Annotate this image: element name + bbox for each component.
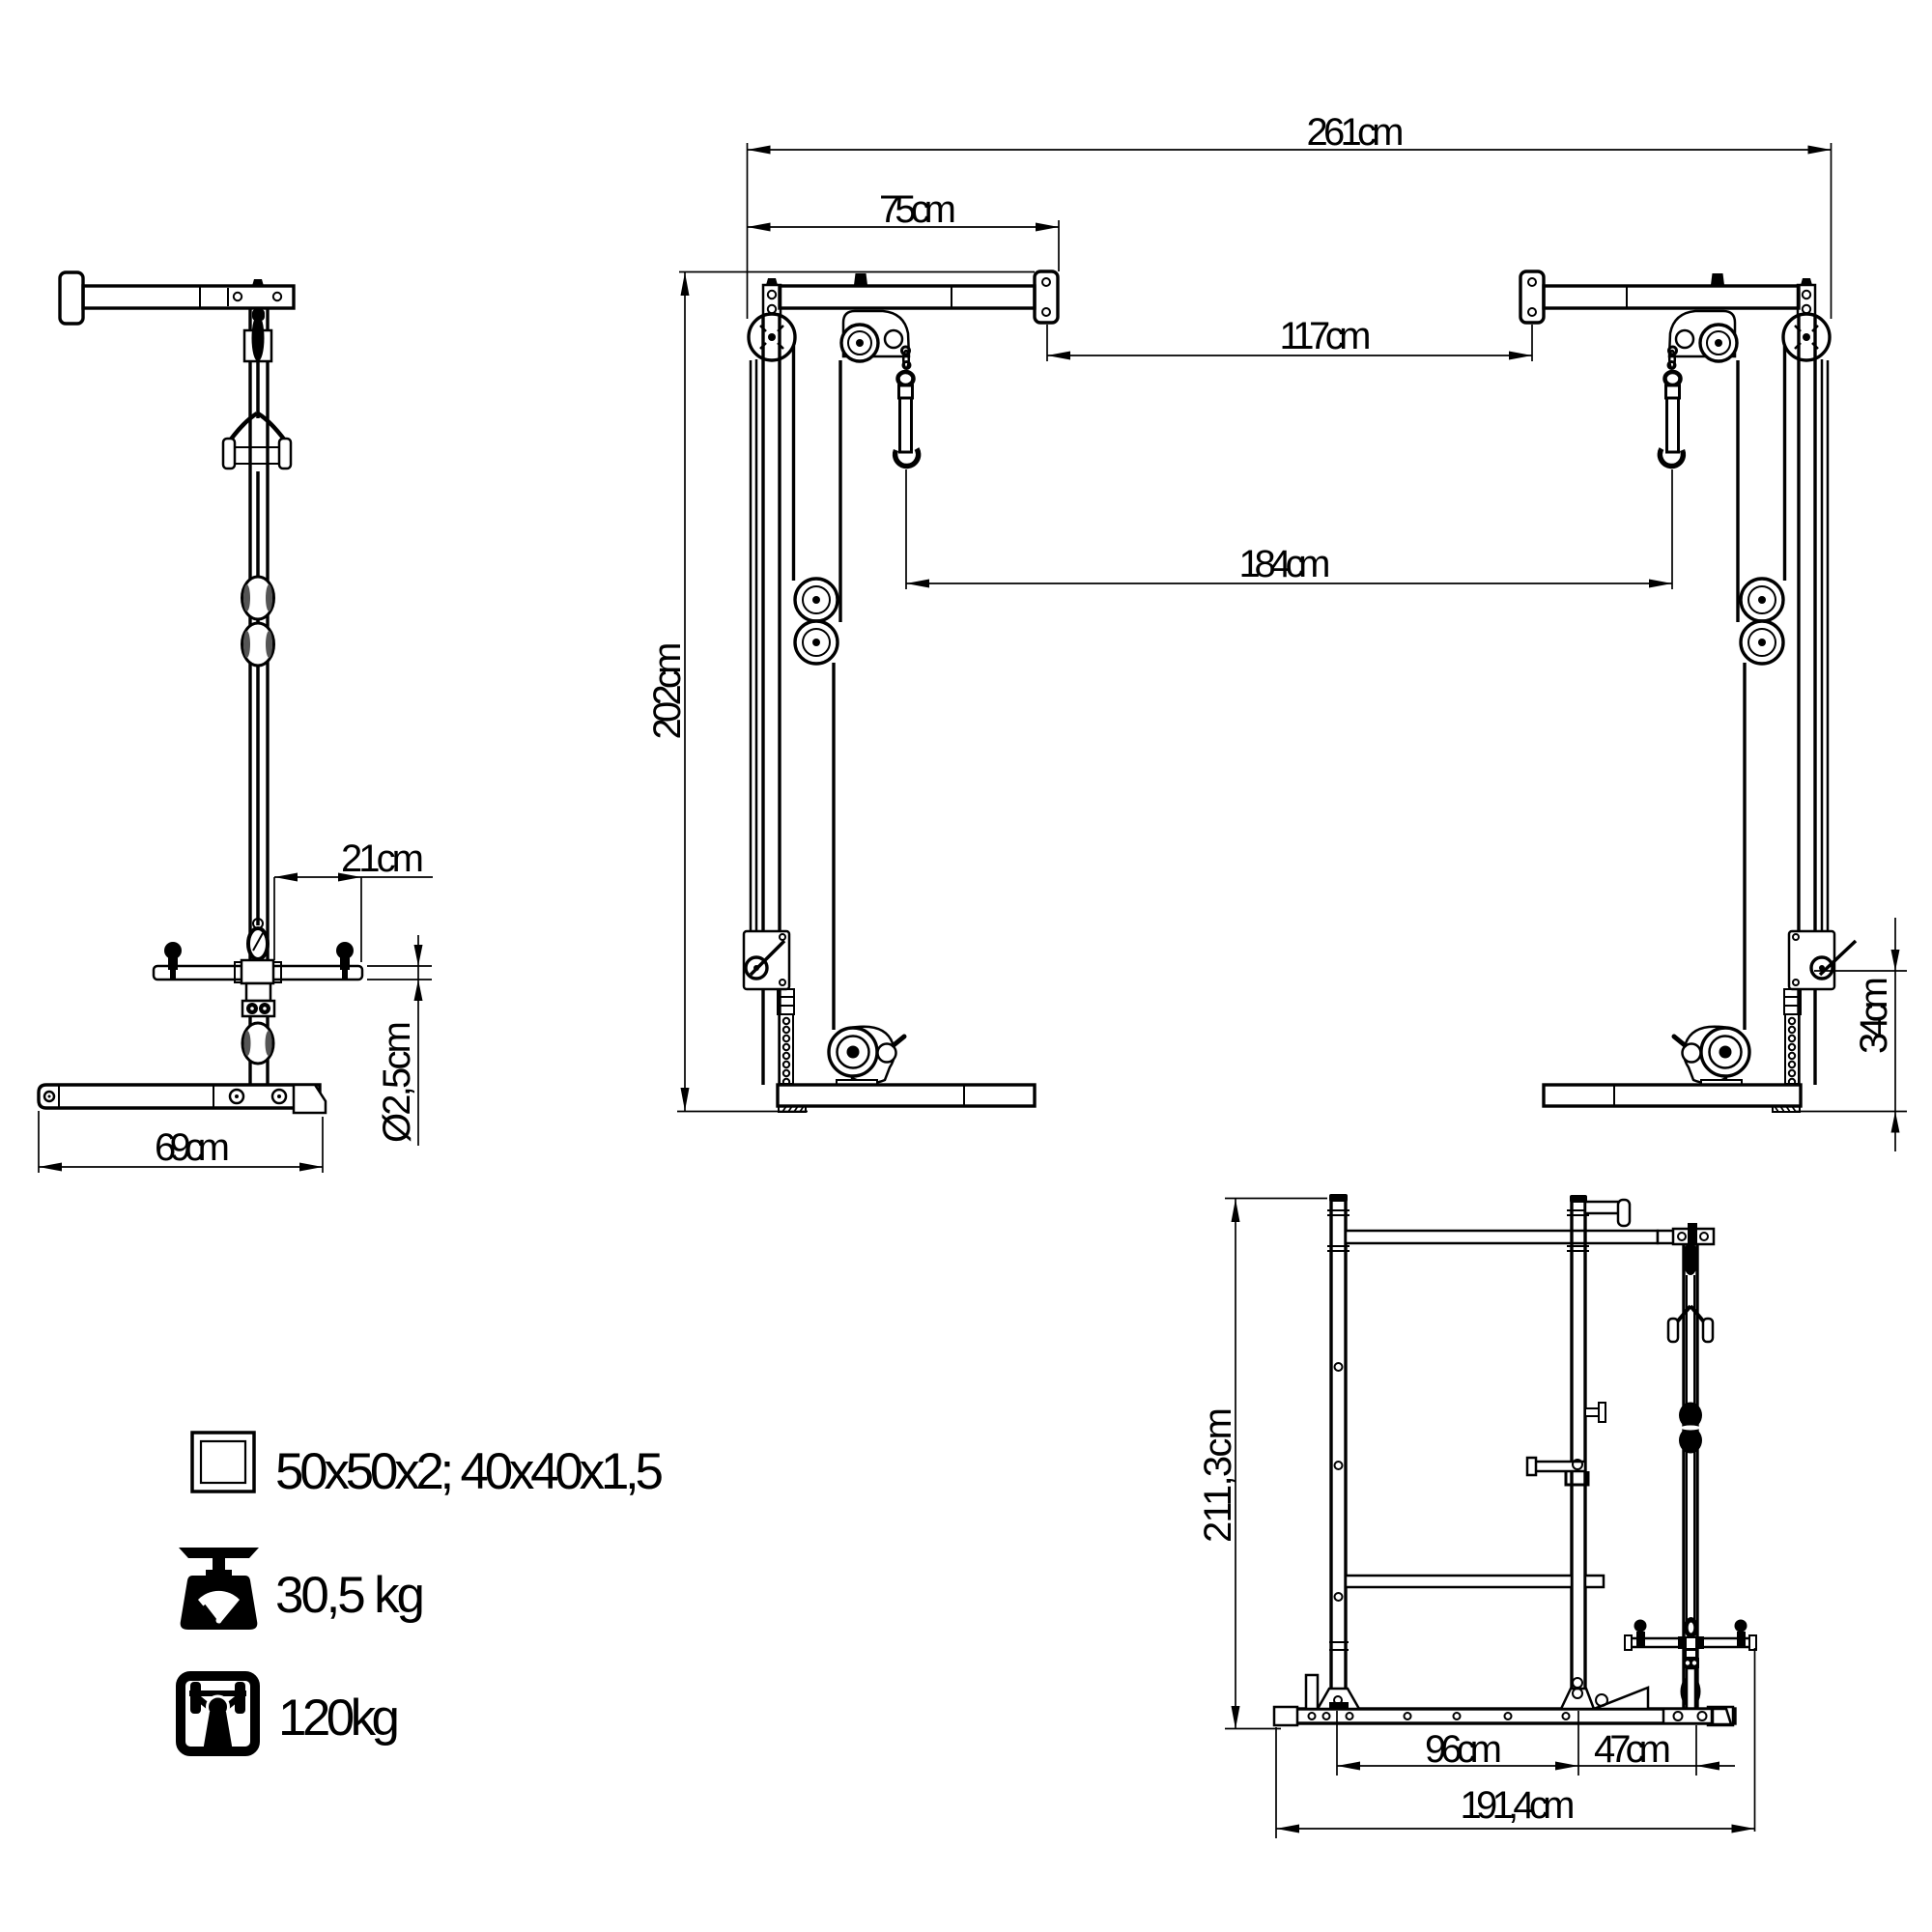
svg-text:75cm: 75cm (879, 188, 956, 231)
svg-text:34cm: 34cm (1853, 977, 1895, 1054)
svg-text:120kg: 120kg (278, 1690, 400, 1747)
svg-text:30,5 kg: 30,5 kg (275, 1567, 425, 1624)
svg-text:184cm: 184cm (1239, 543, 1331, 585)
svg-text:191,4cm: 191,4cm (1461, 1784, 1576, 1827)
svg-text:211,3cm: 211,3cm (1197, 1407, 1239, 1543)
svg-text:50x50x2; 40x40x1,5: 50x50x2; 40x40x1,5 (275, 1443, 664, 1500)
svg-text:96cm: 96cm (1425, 1728, 1502, 1771)
svg-text:47cm: 47cm (1594, 1728, 1671, 1771)
svg-text:69cm: 69cm (155, 1126, 230, 1169)
svg-text:21cm: 21cm (341, 838, 424, 880)
svg-text:Ø2,5cm: Ø2,5cm (376, 1021, 418, 1143)
svg-text:202cm: 202cm (646, 642, 689, 740)
svg-text:117cm: 117cm (1280, 315, 1372, 357)
svg-text:261cm: 261cm (1307, 111, 1405, 154)
